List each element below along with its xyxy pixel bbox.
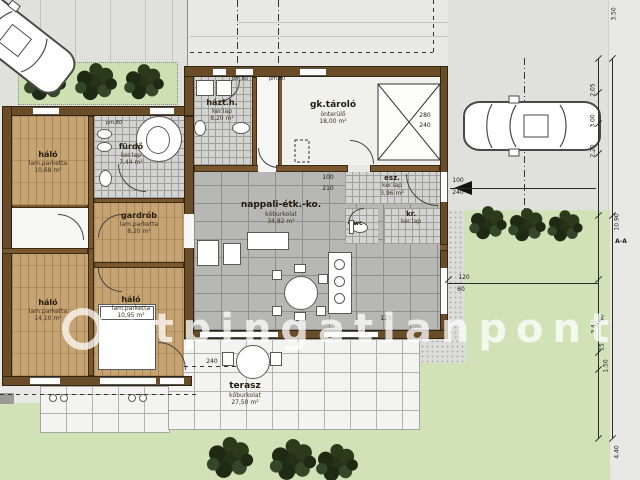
- room-name: házt.h.: [206, 98, 237, 108]
- dim-label: 2.05: [590, 83, 597, 96]
- room-label-wardrobe: gardrób lam.parketta 8,20 m²: [120, 211, 158, 236]
- watermark-prefix: otp: [118, 306, 220, 352]
- room-name: gardrób: [120, 211, 158, 221]
- room-label-garage: gk.tároló önterülő 18,00 m²: [310, 100, 356, 126]
- entry-dimension-line: [450, 188, 596, 189]
- dimension-line-horizontal: [448, 283, 598, 284]
- dashed-fixture-box: [295, 140, 309, 162]
- section-marker: A-A: [615, 238, 627, 245]
- room-label-utility: házt.h. ker.lap 8,20 m²: [206, 98, 237, 123]
- room-label-living: nappali-étk.-ko. kőburkolat 34,82 m²: [241, 200, 321, 226]
- room-floor-type: kőburkolat: [241, 211, 321, 219]
- dim-label: 210: [322, 185, 333, 192]
- tree-icon: [207, 437, 253, 478]
- room-label-bathroom: fürdő ker.lap 7,44 m²: [119, 142, 143, 167]
- dim-label: 120: [458, 274, 469, 281]
- room-floor-type: lam.parketta: [29, 160, 67, 168]
- room-name: nappali-étk.-ko.: [241, 200, 321, 211]
- dim-label: 240: [206, 358, 217, 365]
- tree-icon: [508, 208, 545, 241]
- room-label-bedroom-2: háló lam.parketta 14,10 m²: [29, 298, 67, 323]
- tree-icon: [124, 64, 164, 99]
- tree-icon: [270, 439, 316, 480]
- watermark-rest: ingatlanpont: [220, 306, 618, 352]
- dim-label: 4.40: [614, 445, 621, 458]
- room-area: 3,96 m²: [380, 190, 404, 198]
- dim-label: 100: [452, 177, 463, 184]
- room-name: kr.: [401, 210, 421, 218]
- floor-plan-canvas: 3.50 2.05 3.00 2.20 30 10.90 3.45 15 1.5…: [0, 0, 640, 480]
- hall-passage: [184, 214, 194, 248]
- dim-label: 3.50: [611, 7, 618, 20]
- room-label-pantry: kr. ker.lap: [401, 210, 421, 226]
- room-name: terasz: [229, 381, 261, 392]
- vector-layer: [0, 0, 640, 480]
- dim-label: 2.20: [590, 144, 597, 157]
- room-area: 18,00 m²: [310, 118, 356, 126]
- room-area: 14,10 m²: [29, 315, 67, 323]
- watermark: otpingatlanpont: [118, 306, 618, 352]
- room-label-wc: wc: [353, 220, 362, 227]
- tree-icon: [75, 63, 117, 100]
- dimension-line-vertical: [598, 58, 599, 438]
- dim-label: 10.90: [614, 213, 621, 230]
- room-area: 10,68 m²: [29, 167, 67, 175]
- room-name: gk.tároló: [310, 100, 356, 111]
- room-floor-type: ker.lap: [380, 182, 404, 190]
- room-floor-type: ker.lap: [119, 152, 143, 160]
- room-floor-type: ker.lap: [401, 218, 421, 226]
- room-area: 7,44 m²: [119, 159, 143, 167]
- room-area: 8,20 m²: [206, 115, 237, 123]
- room-name: wc: [353, 220, 362, 227]
- tree-icon: [547, 210, 582, 241]
- room-floor-type: lam.parketta: [120, 221, 158, 229]
- room-name: fürdő: [119, 142, 143, 152]
- dim-label: 280: [419, 112, 430, 119]
- room-floor-type: önterülő: [310, 111, 356, 119]
- watermark-logo-icon: [62, 308, 104, 350]
- room-floor-type: lam.parketta: [29, 308, 67, 316]
- dim-label: 240: [452, 189, 463, 196]
- tree-icon: [316, 444, 358, 480]
- room-name: háló: [29, 298, 67, 308]
- dim-label: 3.00: [590, 114, 597, 127]
- dimension-line-vertical: [612, 58, 613, 438]
- dim-label: 1.50: [603, 359, 610, 372]
- door-size-label: pm.80: [232, 76, 248, 82]
- room-label-entry: esz. ker.lap 3,96 m²: [380, 174, 404, 197]
- room-label-terrace: terasz kőburkolat 27,50 m²: [229, 381, 261, 407]
- room-floor-type: kőburkolat: [229, 392, 261, 400]
- dim-label: 240: [419, 122, 430, 129]
- room-area: 34,82 m²: [241, 218, 321, 226]
- room-name: háló: [29, 150, 67, 160]
- dim-label: 100: [322, 174, 333, 181]
- door-size-label: pm.80: [269, 76, 285, 82]
- dim-label: 60: [457, 286, 465, 293]
- room-name: háló: [112, 295, 150, 305]
- room-area: 8,20 m²: [120, 228, 158, 236]
- room-area: 27,50 m²: [229, 399, 261, 407]
- room-name: esz.: [380, 174, 404, 182]
- tree-icon: [469, 206, 506, 239]
- room-label-bedroom-1: háló lam.parketta 10,68 m²: [29, 150, 67, 175]
- room-floor-type: ker.lap: [206, 108, 237, 116]
- parked-car-icon: [464, 96, 600, 156]
- door-size-label: pm.80: [106, 120, 122, 126]
- parked-car-icon: [0, 0, 84, 104]
